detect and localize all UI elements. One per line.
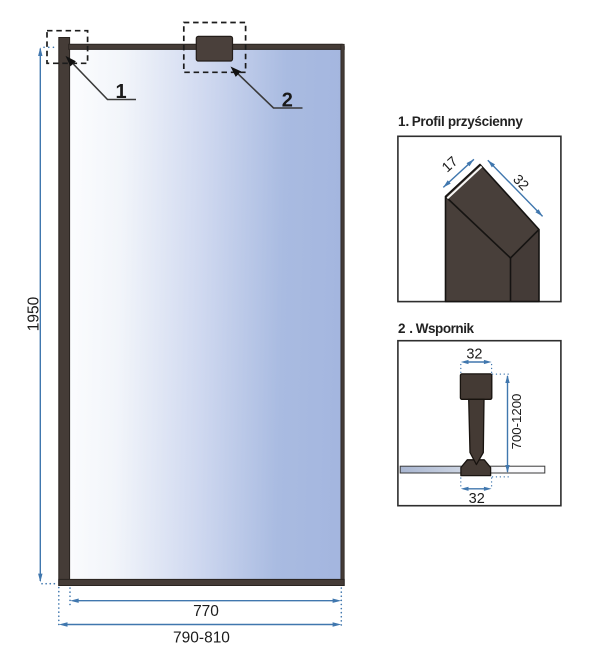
svg-text:790-810: 790-810 xyxy=(173,629,230,646)
svg-text:1950: 1950 xyxy=(25,296,42,331)
svg-text:Wspornik: Wspornik xyxy=(416,321,475,336)
svg-text:32: 32 xyxy=(466,347,482,363)
svg-text:32: 32 xyxy=(469,491,485,507)
svg-text:2 .: 2 . xyxy=(398,321,413,336)
svg-text:Profil przyścienny: Profil przyścienny xyxy=(412,114,524,129)
svg-text:2: 2 xyxy=(282,90,293,112)
svg-text:1: 1 xyxy=(115,81,126,103)
svg-text:770: 770 xyxy=(193,603,219,620)
svg-text:1.: 1. xyxy=(398,114,409,129)
svg-text:700-1200: 700-1200 xyxy=(509,394,524,450)
